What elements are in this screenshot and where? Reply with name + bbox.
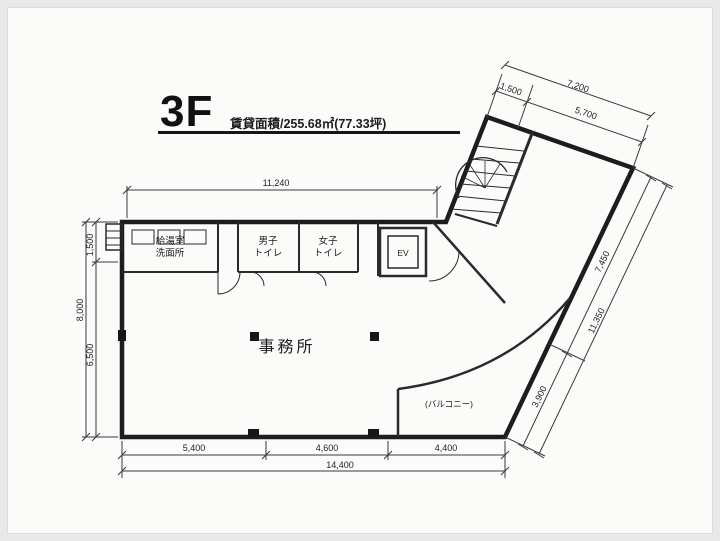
duct-box [106, 224, 122, 250]
dimension-left: 1,500 6,500 8,000 [75, 218, 118, 441]
wall-pilaster [118, 330, 126, 341]
wall-pilaster [248, 429, 259, 437]
balcony-label: (バルコニー) [425, 399, 473, 409]
elevator-label: EV [397, 248, 409, 258]
exterior-wall-outline [122, 117, 633, 437]
dim-bottom-seg3-label: 4,400 [435, 443, 458, 453]
rooms-partitions [218, 222, 378, 276]
dim-left-upper-label: 1,500 [85, 234, 95, 257]
room-a-label-1: 給湯室 [156, 235, 185, 247]
dim-right-lower-label: 3,900 [530, 384, 549, 409]
stair-enclosure-wall [497, 131, 533, 224]
dim-right-total-label: 11,350 [586, 306, 607, 335]
dim-wing-total-label: 7,200 [566, 78, 591, 95]
dim-bottom-total-label: 14,400 [326, 460, 354, 470]
title-block: 3F 賃貸面積/255.68㎡(77.33坪) [158, 87, 460, 136]
elevator: EV [380, 228, 426, 276]
room-b-label-1: 男子 [258, 236, 278, 247]
dim-right-upper-label: 7,450 [593, 249, 612, 274]
dim-bottom-lines [122, 455, 505, 471]
duct-hatch [106, 231, 122, 245]
title-underline [158, 131, 460, 134]
floorplan-paper: 3F 賃貸面積/255.68㎡(77.33坪) EV [7, 7, 713, 534]
corridor-door-arc [218, 272, 240, 294]
wall-pilaster [368, 429, 379, 437]
stair-enclosure-bottom [455, 214, 497, 226]
floor-title: 3F [160, 87, 213, 136]
womens-door-arc [312, 272, 326, 286]
room-c-label-2: トイレ [314, 248, 343, 259]
dimension-wing: 1,500 5,700 7,200 [487, 61, 655, 168]
dim-bottom-seg2-label: 4,600 [316, 443, 339, 453]
dim-bottom-seg1-label: 5,400 [183, 443, 206, 453]
dimension-bottom: 5,400 4,600 4,400 14,400 [118, 441, 509, 478]
exterior-walls [106, 117, 633, 437]
interior-partitions [122, 222, 570, 437]
dimension-top: 11,240 [123, 178, 441, 218]
dim-wing-short-label: 1,500 [499, 81, 524, 98]
dim-left-lower-label: 6,500 [85, 344, 95, 367]
image-frame: 3F 賃貸面積/255.68㎡(77.33坪) EV [0, 0, 720, 541]
room-a-label-2: 洗面所 [156, 247, 185, 259]
area-label: 賃貸面積/255.68㎡(77.33坪) [229, 116, 386, 131]
dim-top-extensions [127, 186, 437, 218]
balcony-curve-wall [398, 298, 570, 389]
dim-right-extensions [505, 168, 673, 456]
lobby-wall [433, 222, 505, 303]
room-c-label-1: 女子 [318, 235, 338, 247]
columns [118, 330, 379, 437]
office-label: 事務所 [258, 338, 315, 356]
lobby-door-arc [429, 251, 459, 281]
floorplan-drawing: 3F 賃貸面積/255.68㎡(77.33坪) EV [0, 0, 720, 541]
dimension-right: 7,450 3,900 11,350 [505, 168, 673, 458]
mens-door-arc [250, 272, 264, 286]
dim-wing-ticks [492, 61, 655, 146]
dim-top-label: 11,240 [263, 178, 290, 188]
column [370, 332, 379, 341]
room-b-label-2: トイレ [254, 248, 283, 259]
dim-left-total-label: 8,000 [75, 299, 85, 322]
